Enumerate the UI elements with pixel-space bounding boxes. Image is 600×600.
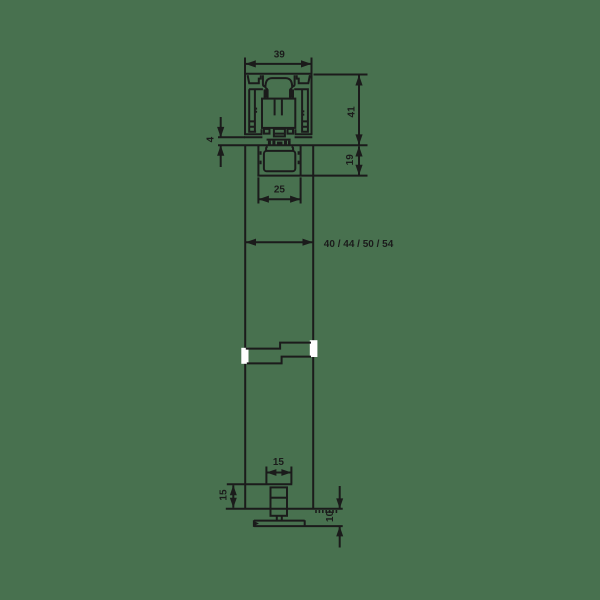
svg-text:15: 15 [218,489,229,501]
svg-text:19: 19 [345,154,356,166]
svg-text:10: 10 [325,510,336,522]
svg-text:40 / 44 / 50 / 54: 40 / 44 / 50 / 54 [324,239,394,250]
svg-text:41: 41 [347,106,358,118]
svg-text:4: 4 [206,136,217,142]
svg-text:25: 25 [274,185,286,196]
svg-text:39: 39 [274,50,286,61]
svg-text:15: 15 [273,457,285,468]
